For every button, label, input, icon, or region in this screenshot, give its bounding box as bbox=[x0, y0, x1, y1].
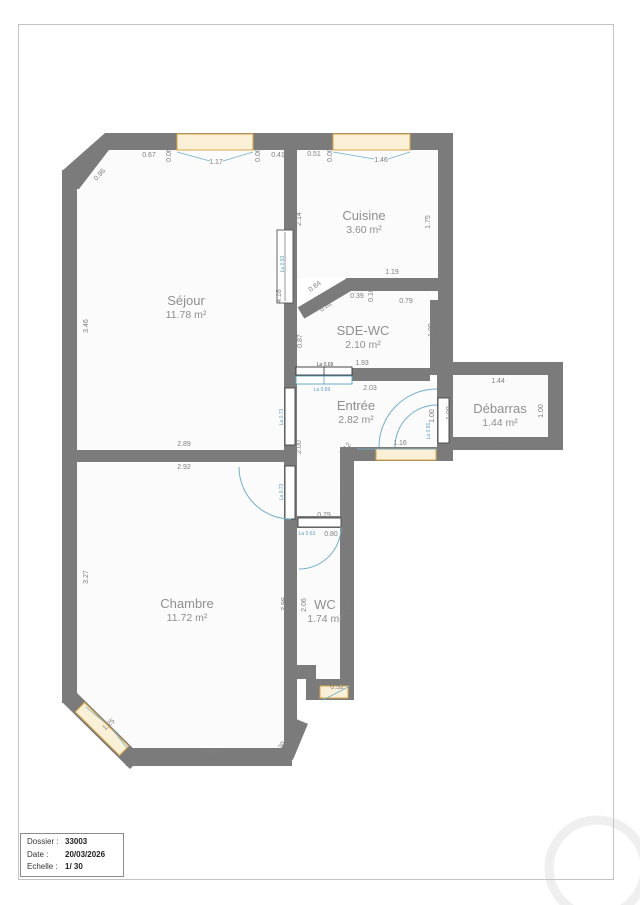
dimension-label: 2.03 bbox=[363, 385, 377, 392]
dimension-label: 0.06 bbox=[166, 148, 173, 162]
dimension-label: 1.09 bbox=[428, 323, 435, 337]
dimension-label: La 0.93 bbox=[280, 255, 286, 272]
front-door bbox=[376, 449, 436, 460]
wall-sejour-chambre bbox=[62, 450, 297, 462]
dimension-label: 1.93 bbox=[355, 360, 369, 367]
dimension-label: 0.67 bbox=[142, 152, 156, 159]
dimension-label: La 0.69 bbox=[317, 362, 334, 368]
dimension-label: La 0.69 bbox=[314, 387, 331, 393]
dossier-row: Dossier : 33003 bbox=[27, 838, 123, 847]
corridor-floor bbox=[297, 447, 340, 516]
dimension-label: 2.00 bbox=[296, 440, 303, 454]
dimension-label: La 0.73 bbox=[279, 483, 285, 500]
dimension-label: 1.00 bbox=[429, 409, 436, 423]
date-value: 20/03/2026 bbox=[65, 851, 105, 860]
echelle-value: 1/ 30 bbox=[65, 863, 83, 872]
dimension-label: 1.16 bbox=[393, 440, 407, 447]
room-name: Chambre bbox=[160, 596, 213, 611]
dimension-label: 0.41 bbox=[271, 152, 285, 159]
dimension-label: 0.91 bbox=[342, 482, 349, 496]
dimension-label: 0.79 bbox=[317, 512, 331, 519]
dimension-label: 2.89 bbox=[177, 441, 191, 448]
dimension-label: 1.92 bbox=[204, 750, 218, 757]
wc-door-leaf bbox=[298, 518, 341, 527]
dimension-label: 0.28 bbox=[299, 666, 313, 673]
title-block: Dossier : 33003 Date : 20/03/2026 Echell… bbox=[20, 833, 124, 877]
dimension-label: 1.00 bbox=[538, 404, 545, 418]
dimension-label: 2.24 bbox=[345, 602, 352, 616]
dimension-label: La 0.63 bbox=[299, 531, 316, 537]
room-name: SDE-WC bbox=[337, 323, 390, 338]
dimension-label: La 0.91 bbox=[426, 422, 432, 439]
room-area: 2.82 m² bbox=[338, 414, 374, 426]
room-area: 3.60 m² bbox=[346, 224, 382, 236]
dimension-label: 0.06 bbox=[327, 148, 334, 162]
dimension-label: 1.75 bbox=[425, 215, 432, 229]
dimension-label: 1.17 bbox=[209, 159, 223, 166]
floor-plan-page: { "title_block": { "dossier_label": "Dos… bbox=[0, 0, 640, 905]
dimension-label: 3.99 bbox=[281, 597, 288, 611]
date-row: Date : 20/03/2026 bbox=[27, 851, 123, 860]
room-area: 1.44 m² bbox=[482, 417, 518, 429]
date-label: Date : bbox=[27, 851, 61, 860]
room-area: 11.78 m² bbox=[166, 309, 207, 321]
dimension-label: 2.06 bbox=[301, 598, 308, 612]
floor-plan-svg: Séjour11.78 m²Cuisine3.60 m²SDE-WC2.10 m… bbox=[0, 0, 640, 905]
dimension-label: 4.18 bbox=[276, 289, 283, 303]
room-name: Cuisine bbox=[342, 208, 385, 223]
wall-debarras-top bbox=[438, 362, 563, 375]
wall-debarras-right bbox=[548, 362, 563, 450]
dimension-label: 1.00 bbox=[446, 406, 453, 420]
cuisine-window bbox=[333, 134, 410, 150]
echelle-label: Echelle : bbox=[27, 863, 61, 872]
dimension-label: 0.39 bbox=[350, 293, 364, 300]
dimension-label: 1.46 bbox=[374, 157, 388, 164]
wall-left bbox=[62, 170, 77, 703]
sejour-door-leaf bbox=[285, 388, 295, 445]
room-name: Séjour bbox=[167, 293, 205, 308]
dimension-label: 1.44 bbox=[491, 378, 505, 385]
chambre-door-leaf bbox=[285, 466, 295, 519]
dimension-label: 1.44 bbox=[491, 442, 505, 449]
dimension-label: 0.52 bbox=[330, 684, 344, 691]
dimension-label: 3.46 bbox=[83, 319, 90, 333]
dossier-value: 33003 bbox=[65, 838, 87, 847]
wall-cuisine-bottom bbox=[346, 278, 438, 291]
dimension-label: 1.19 bbox=[385, 269, 399, 276]
dimension-label: 0.80 bbox=[324, 531, 338, 538]
dimension-label: 2.92 bbox=[177, 464, 191, 471]
room-area: 11.72 m² bbox=[167, 612, 208, 624]
sejour-window bbox=[177, 134, 253, 150]
dimension-label: 0.84 bbox=[308, 280, 323, 294]
dimension-label: 0.51 bbox=[307, 151, 321, 158]
dimension-label: 3.27 bbox=[83, 570, 90, 584]
room-name: Débarras bbox=[473, 401, 527, 416]
room-area: 2.10 m² bbox=[345, 339, 381, 351]
room-name: Entrée bbox=[337, 398, 375, 413]
room-area: 1.74 m² bbox=[307, 613, 343, 625]
dimension-label: 2.14 bbox=[296, 212, 303, 226]
dimension-label: 0.79 bbox=[399, 298, 413, 305]
echelle-row: Echelle : 1/ 30 bbox=[27, 863, 123, 872]
dimension-label: 0.06 bbox=[255, 148, 262, 162]
dimension-label: 0.10 bbox=[368, 288, 375, 302]
room-name: WC bbox=[314, 597, 336, 612]
dossier-label: Dossier : bbox=[27, 838, 61, 847]
watermark-circle bbox=[549, 820, 640, 905]
dimension-label: La 0.73 bbox=[279, 408, 285, 425]
dimension-label: 0.87 bbox=[297, 334, 304, 348]
